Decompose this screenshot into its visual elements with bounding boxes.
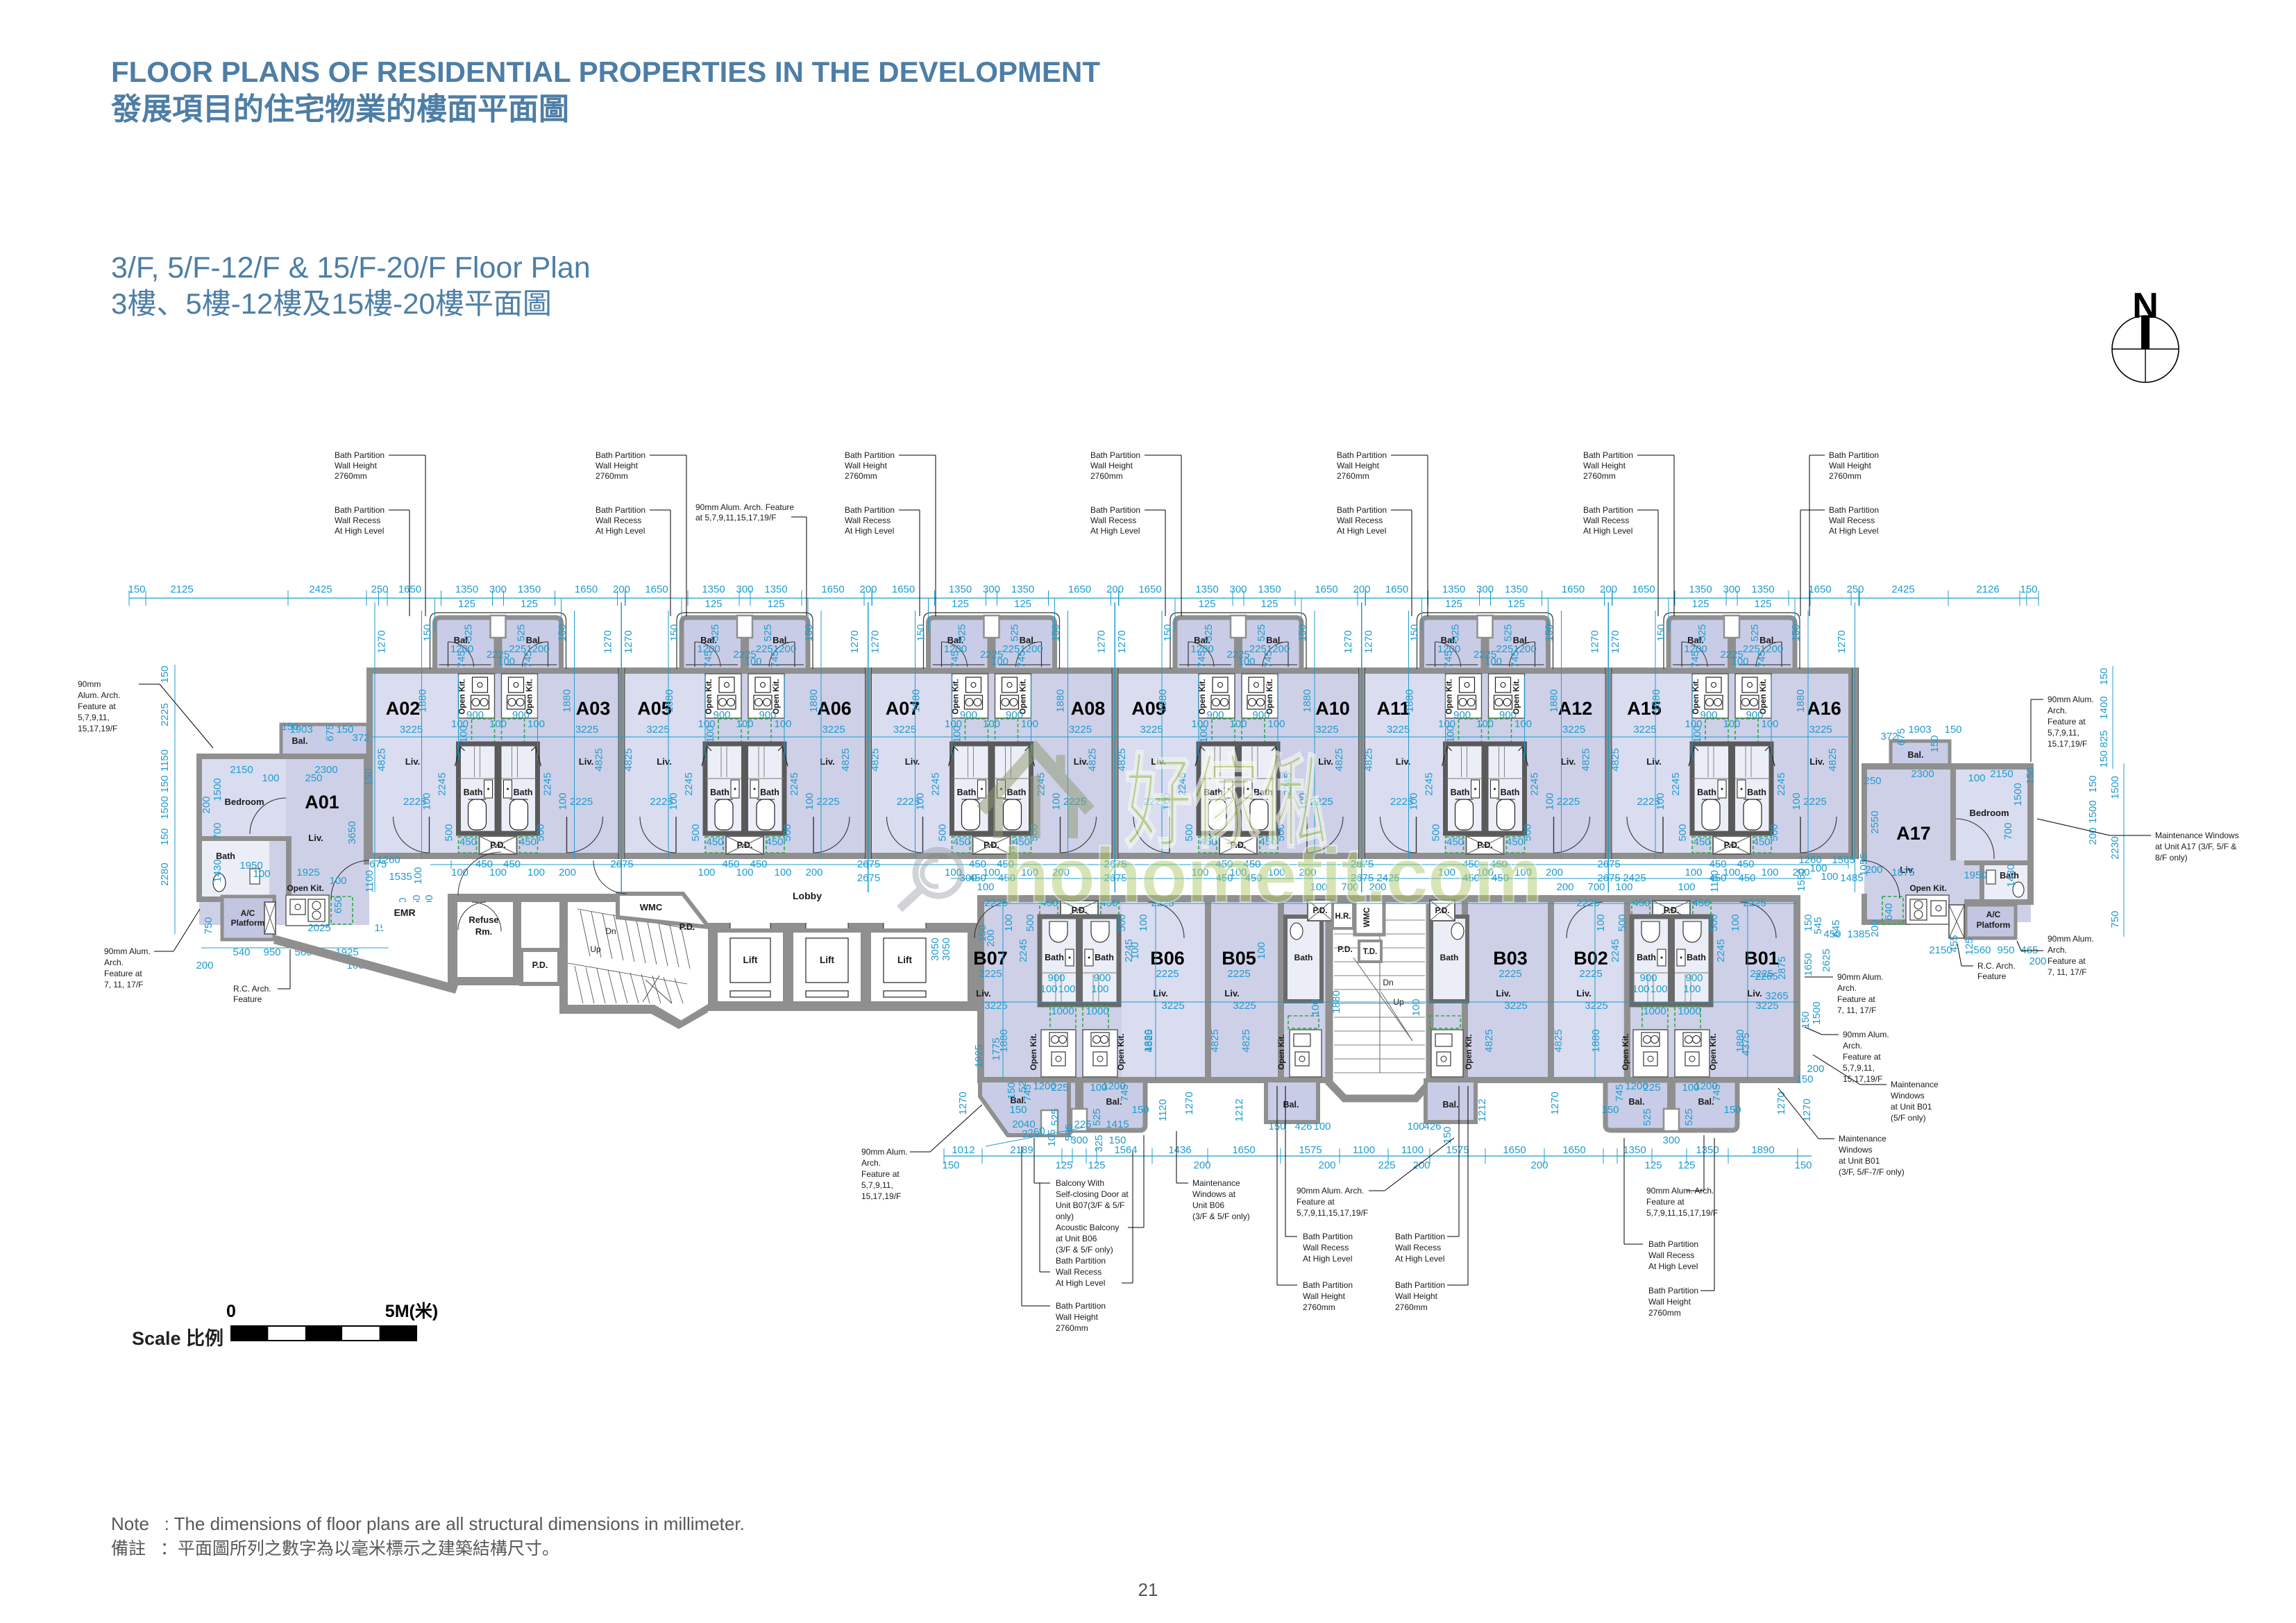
svg-text:15,17,19/F: 15,17,19/F [1843,1074,1882,1084]
svg-text:450: 450 [766,836,783,848]
svg-text:100: 100 [1407,1121,1424,1132]
svg-text:2225: 2225 [979,968,1002,980]
svg-text:Wall Recess: Wall Recess [845,516,890,525]
svg-text:B07: B07 [973,948,1008,969]
svg-text:125: 125 [1260,598,1278,610]
svg-text:Bath: Bath [1637,953,1656,962]
svg-text:525: 525 [956,624,968,641]
svg-text:R.C. Arch.: R.C. Arch. [233,984,271,994]
svg-text:4825: 4825 [1209,1029,1221,1052]
svg-text:2245: 2245 [930,772,942,795]
svg-text:450: 450 [1753,836,1770,848]
svg-text:A16: A16 [1807,698,1841,719]
svg-text:100: 100 [421,792,433,810]
svg-text:1270: 1270 [602,630,614,653]
svg-text:4825: 4825 [1363,748,1375,771]
svg-text:150: 150 [1790,624,1802,641]
svg-text:500: 500 [444,824,455,841]
svg-text:1100: 1100 [1709,870,1721,892]
svg-text:150: 150 [1944,724,1961,736]
svg-text:150: 150 [2098,668,2110,685]
svg-text:8/F only): 8/F only) [2155,853,2188,863]
svg-text:1350: 1350 [455,584,478,595]
svg-text:Wall Recess: Wall Recess [596,516,641,525]
svg-text:Refuse: Refuse [469,915,498,925]
svg-text:Wall Height: Wall Height [1090,461,1133,470]
svg-text:2245: 2245 [1529,772,1541,795]
svg-text:450: 450 [1632,897,1650,909]
svg-text:500: 500 [535,824,547,841]
svg-text:1500: 1500 [2012,783,2024,806]
svg-text:150: 150 [1544,624,1555,641]
svg-text:(3/F, 5/F-7/F only): (3/F, 5/F-7/F only) [1839,1167,1905,1177]
svg-text:Note : The dimensions of flo: Note : The dimensions of floor plans are… [111,1513,745,1534]
svg-text:Wall Recess: Wall Recess [1583,516,1629,525]
svg-text:100: 100 [1595,914,1607,931]
svg-text:500: 500 [1708,914,1720,931]
svg-text:3225: 3225 [575,724,598,736]
svg-text:Arch.: Arch. [1843,1041,1862,1051]
svg-text:2251200: 2251200 [1249,643,1290,655]
svg-text:525: 525 [1450,624,1462,641]
svg-text:1880: 1880 [562,689,573,712]
svg-text:Wall Height: Wall Height [1337,461,1380,470]
svg-text:Windows at: Windows at [1192,1189,1236,1199]
svg-text:100: 100 [489,867,507,878]
svg-text:2760mm: 2760mm [596,471,628,481]
svg-text:2225: 2225 [159,703,171,726]
svg-text:1055: 1055 [1858,853,1870,876]
svg-text:90mm Alum. Arch. Feature: 90mm Alum. Arch. Feature [695,502,794,512]
svg-text:4825: 4825 [1827,748,1839,771]
svg-text:100: 100 [1129,942,1141,959]
svg-text:P.D.: P.D. [1664,906,1680,915]
svg-text:1100: 1100 [1353,1144,1375,1156]
svg-text:1200: 1200 [1190,643,1213,655]
svg-text:Wall Height: Wall Height [335,461,378,470]
svg-text:1650: 1650 [1562,584,1585,595]
svg-text:900: 900 [1639,972,1657,984]
svg-text:Feature at: Feature at [1297,1197,1335,1207]
svg-text:Bath: Bath [1045,953,1064,962]
svg-text:100: 100 [1650,983,1667,995]
svg-text:發展項目的住宅物業的樓面平面圖: 發展項目的住宅物業的樓面平面圖 [110,92,569,126]
svg-text:100: 100 [1445,725,1457,742]
svg-text:100: 100 [1310,999,1322,1016]
svg-text:150: 150 [159,665,171,683]
svg-text:Liv.: Liv. [1576,988,1591,999]
svg-text:200: 200 [1412,1159,1430,1171]
svg-text:1212: 1212 [1233,1098,1245,1121]
svg-text:Bath Partition: Bath Partition [1056,1301,1106,1311]
svg-text:300: 300 [983,584,1000,595]
svg-text:1000: 1000 [1643,1005,1666,1017]
svg-text:2760mm: 2760mm [1303,1302,1335,1312]
svg-text:100: 100 [1410,999,1422,1016]
svg-text:Platform: Platform [231,918,265,928]
svg-text:5M(米): 5M(米) [385,1302,438,1321]
svg-text:Dn: Dn [605,926,616,936]
svg-text:Wall Height: Wall Height [1829,461,1872,470]
svg-text:200: 200 [1556,881,1573,893]
svg-text:Liv.: Liv. [405,756,420,767]
svg-text:Lift: Lift [743,955,758,965]
svg-text:125: 125 [1445,598,1462,610]
svg-text:150: 150 [1009,1104,1027,1116]
svg-text:500: 500 [937,824,949,841]
svg-text:100: 100 [1058,983,1075,995]
svg-text:1200: 1200 [697,643,720,655]
svg-text:1880: 1880 [1795,689,1807,712]
svg-text:P.D.: P.D. [1724,840,1740,850]
svg-text:Lobby: Lobby [793,890,822,901]
svg-text:750: 750 [203,917,214,934]
svg-text:Liv.: Liv. [905,756,920,767]
svg-text:250: 250 [371,584,388,595]
svg-text:1150: 1150 [159,749,171,772]
svg-text:WMC: WMC [640,902,663,912]
svg-text:2760mm: 2760mm [845,471,877,481]
svg-text:300: 300 [1070,1135,1088,1146]
svg-text:4375: 4375 [1740,1033,1752,1055]
svg-text:3225: 3225 [1562,724,1585,736]
svg-text:1650: 1650 [1562,1144,1585,1156]
svg-text:Bath Partition: Bath Partition [335,505,385,515]
svg-text:100: 100 [1090,1082,1107,1094]
svg-text:3225: 3225 [1809,724,1832,736]
svg-text:150: 150 [159,775,171,792]
svg-text:1880: 1880 [1301,689,1313,712]
svg-text:2675: 2675 [1597,858,1620,870]
svg-text:2225: 2225 [1743,897,1766,909]
svg-text:Self-closing Door at: Self-closing Door at [1056,1189,1129,1199]
svg-text:225: 225 [1643,1082,1660,1094]
svg-text:900: 900 [1453,709,1471,721]
svg-text:900: 900 [713,709,730,721]
svg-text:2245: 2245 [1018,939,1029,962]
svg-text:200: 200 [613,584,630,595]
svg-text:2225: 2225 [1156,968,1179,980]
svg-text:1650: 1650 [892,584,915,595]
svg-text:450: 450 [706,836,723,848]
svg-text:1650: 1650 [1315,584,1337,595]
svg-text:2225: 2225 [1557,796,1580,808]
svg-text:325: 325 [1093,1135,1105,1152]
svg-text:hohomefit.com: hohomefit.com [1002,832,1542,919]
svg-text:B02: B02 [1573,948,1608,969]
svg-text:4825: 4825 [1143,1029,1155,1052]
svg-text:100: 100 [1761,867,1778,878]
svg-text:1350: 1350 [1696,1144,1719,1156]
svg-text:150: 150 [668,624,680,641]
svg-text:1650: 1650 [1068,584,1091,595]
svg-text:300: 300 [1662,1135,1680,1146]
svg-text:100: 100 [1267,718,1285,730]
svg-text:4825: 4825 [376,748,388,771]
svg-text:100: 100 [1476,718,1494,730]
svg-text:4825: 4825 [1333,748,1345,771]
svg-text:Wall Height: Wall Height [1648,1297,1691,1307]
svg-text:Acoustic Balcony: Acoustic Balcony [1056,1223,1119,1232]
svg-text:1120: 1120 [1157,1099,1169,1121]
svg-text:1270: 1270 [849,630,861,653]
svg-text:1100: 1100 [364,870,375,892]
svg-text:2245: 2245 [1670,772,1682,795]
svg-text:Lift: Lift [897,955,912,965]
svg-text:1650: 1650 [1503,1144,1526,1156]
svg-text:150: 150 [281,721,298,733]
svg-text:2675: 2675 [857,858,880,870]
svg-text:125: 125 [458,598,475,610]
svg-text:100: 100 [262,772,279,784]
svg-text:Maintenance: Maintenance [1839,1134,1886,1144]
svg-text:640: 640 [1883,903,1895,920]
svg-text:1500: 1500 [159,796,171,819]
svg-text:2225: 2225 [570,796,593,808]
svg-text:1212: 1212 [1476,1098,1488,1121]
svg-text:1575: 1575 [1299,1144,1322,1156]
svg-text:950: 950 [263,946,280,958]
svg-text:P.D.: P.D. [737,840,753,850]
svg-text:1875: 1875 [1891,867,1914,878]
svg-text:1880: 1880 [664,689,675,712]
svg-text:A08: A08 [1071,698,1106,719]
svg-text:525: 525 [1009,624,1021,641]
svg-text:150: 150 [1655,624,1667,641]
svg-text:100: 100 [557,792,569,810]
svg-text:2245: 2245 [1610,939,1621,962]
svg-text:150: 150 [128,584,145,595]
svg-text:1350: 1350 [518,584,541,595]
svg-text:1500: 1500 [2109,776,2121,799]
svg-text:Unit B06: Unit B06 [1192,1200,1224,1210]
svg-text:Arch.: Arch. [104,958,124,967]
svg-text:Bath: Bath [1747,788,1766,797]
svg-text:Arch.: Arch. [861,1158,881,1168]
svg-text:125: 125 [704,598,722,610]
svg-text:P.D.: P.D. [490,840,506,850]
svg-text:at Unit B01: at Unit B01 [1839,1156,1880,1166]
svg-text:150: 150 [2020,584,2037,595]
svg-text:1430: 1430 [2005,864,2017,887]
svg-text:5,7,9,11,: 5,7,9,11, [1843,1063,1875,1073]
svg-text:5,7,9,11,15,17,19/F: 5,7,9,11,15,17,19/F [1297,1208,1368,1218]
svg-text:1270: 1270 [1183,1091,1195,1114]
svg-text:1000: 1000 [1051,1005,1074,1017]
svg-text:100: 100 [1408,792,1420,810]
svg-text:300: 300 [736,584,753,595]
svg-text:1880: 1880 [1651,689,1662,712]
svg-text:1650: 1650 [575,584,598,595]
svg-text:2245: 2245 [437,772,448,795]
svg-text:560: 560 [1973,944,1991,956]
svg-text:Bath Partition: Bath Partition [1583,450,1633,460]
svg-text:P.D.: P.D. [679,922,695,932]
svg-text:Bal.: Bal. [1443,1100,1459,1110]
svg-text:Wall Height: Wall Height [596,461,639,470]
svg-text:2251200: 2251200 [1743,643,1783,655]
svg-text:4825: 4825 [1087,748,1099,771]
svg-text:Wall Height: Wall Height [1056,1312,1099,1322]
svg-text:P.D.: P.D. [532,960,548,970]
svg-text:Dn: Dn [1383,978,1393,987]
svg-text:2225: 2225 [1499,968,1521,980]
svg-text:525: 525 [516,624,527,641]
svg-text:Bath Partition: Bath Partition [1583,505,1633,515]
svg-text:Wall Recess: Wall Recess [1056,1267,1101,1277]
svg-text:2150: 2150 [230,764,253,776]
svg-text:21: 21 [1138,1579,1158,1600]
svg-text:525: 525 [1203,624,1215,641]
svg-text:225: 225 [1051,1082,1068,1094]
svg-text:1350: 1350 [702,584,725,595]
svg-text:Wall Recess: Wall Recess [335,516,380,525]
svg-text:100: 100 [1678,881,1695,893]
svg-text:150: 150 [1131,1104,1149,1116]
svg-text:Open Kit.: Open Kit. [459,679,467,714]
svg-text:Bath Partition: Bath Partition [1303,1232,1353,1241]
svg-text:1650: 1650 [1808,584,1831,595]
svg-text:900: 900 [1047,972,1065,984]
svg-text:150: 150 [2098,750,2110,767]
svg-text:Liv.: Liv. [1224,988,1239,999]
svg-text:EMR: EMR [394,907,415,918]
svg-text:100: 100 [1198,725,1210,742]
svg-text:1350: 1350 [1689,584,1712,595]
svg-text:150: 150 [2025,767,2036,784]
svg-text:1350: 1350 [1258,584,1281,595]
svg-text:100: 100 [983,718,1000,730]
svg-text:Open Kit.: Open Kit. [1446,679,1454,714]
svg-text:100: 100 [329,875,346,887]
svg-text:4825: 4825 [1483,1029,1495,1052]
svg-text:Bath: Bath [464,788,483,797]
svg-text:100: 100 [1615,881,1632,893]
svg-text:Bath: Bath [1697,788,1716,797]
svg-text:100: 100 [736,718,753,730]
svg-text:100: 100 [1040,983,1057,995]
svg-text:Liv.: Liv. [1646,756,1661,767]
svg-text:100: 100 [698,867,715,878]
svg-text:2760mm: 2760mm [1648,1308,1681,1318]
svg-text:125: 125 [1691,598,1709,610]
svg-text:At High Level: At High Level [335,526,384,536]
svg-text:Feature at: Feature at [1843,1052,1881,1062]
svg-text:Arch.: Arch. [2048,945,2067,955]
svg-text:100: 100 [1655,792,1666,810]
svg-text:2225: 2225 [1579,968,1602,980]
svg-text:450: 450 [1692,897,1710,909]
svg-text:Feature at: Feature at [2048,956,2086,966]
svg-text:Feature: Feature [1977,971,2007,981]
svg-text:100: 100 [1682,1082,1699,1094]
svg-text:B05: B05 [1222,948,1256,969]
svg-text:100: 100 [527,718,545,730]
svg-text:Scale 比例: Scale 比例 [132,1328,223,1349]
svg-text:2225: 2225 [1576,897,1599,909]
svg-text:Open Kit.: Open Kit. [1692,679,1700,714]
svg-text:Windows: Windows [1839,1145,1873,1155]
svg-text:2251200: 2251200 [1002,643,1043,655]
svg-text:825: 825 [2098,730,2110,747]
svg-text:1535: 1535 [389,871,412,883]
svg-text:950: 950 [1997,944,2014,956]
svg-text:2760mm: 2760mm [1056,1323,1088,1333]
svg-text:2225: 2225 [816,796,839,808]
svg-text:1350: 1350 [764,584,787,595]
svg-text:2025: 2025 [307,922,330,934]
svg-text:1200: 1200 [1684,643,1707,655]
svg-text:備註 ：平面圖所列之數字為以毫米標示之建築結構尺寸。: 備註 ：平面圖所列之數字為以毫米標示之建築結構尺寸。 [111,1539,559,1558]
svg-text:Wall Recess: Wall Recess [1829,516,1875,525]
svg-text:Bedroom: Bedroom [224,797,264,807]
svg-text:1880: 1880 [1157,689,1169,712]
svg-text:90mm Alum.: 90mm Alum. [861,1147,908,1157]
svg-text:A/C: A/C [241,908,255,918]
svg-text:200: 200 [2029,955,2046,967]
svg-text:2625: 2625 [1821,949,1832,971]
svg-text:Liv.: Liv. [1747,988,1762,999]
svg-text:100: 100 [804,792,816,810]
svg-text:Open Kit.: Open Kit. [705,679,714,714]
svg-text:2550: 2550 [1869,810,1881,833]
svg-text:2675: 2675 [857,872,880,884]
svg-text:Feature at: Feature at [2048,717,2086,726]
svg-text:525: 525 [1641,1108,1653,1125]
svg-text:200: 200 [805,867,822,878]
svg-text:100: 100 [1091,983,1108,995]
svg-text:A03: A03 [576,698,611,719]
svg-text:3225: 3225 [400,724,423,736]
svg-text:150: 150 [159,828,171,845]
svg-text:150: 150 [942,1159,959,1171]
svg-text:745: 745 [1119,1084,1131,1101]
svg-text:525: 525 [762,624,774,641]
svg-text:150: 150 [336,724,353,736]
svg-text:(5/F only): (5/F only) [1891,1113,1926,1123]
svg-text:at Unit B06: at Unit B06 [1056,1234,1097,1243]
svg-text:Open Kit.: Open Kit. [1909,883,1946,893]
svg-text:Bath: Bath [1294,953,1313,962]
svg-text:100: 100 [774,867,791,878]
svg-text:Bath Partition: Bath Partition [1829,450,1879,460]
svg-text:Bath Partition: Bath Partition [845,450,895,460]
svg-text:Bath: Bath [957,788,977,797]
svg-text:Wall Recess: Wall Recess [1337,516,1383,525]
svg-text:Liv.: Liv. [976,988,990,999]
svg-text:Wall Recess: Wall Recess [1395,1243,1441,1252]
svg-text:At High Level: At High Level [1337,526,1386,536]
svg-text:Open Kit.: Open Kit. [1278,1034,1286,1069]
svg-text:B03: B03 [1493,948,1528,969]
svg-text:100: 100 [1683,983,1700,995]
svg-text:Open Kit.: Open Kit. [1465,1034,1474,1069]
svg-text:200: 200 [1807,1063,1824,1075]
svg-text:700: 700 [1587,881,1605,893]
svg-text:525: 525 [709,624,721,641]
svg-text:1270: 1270 [623,630,634,653]
svg-text:only): only) [1056,1212,1074,1221]
svg-text:1650: 1650 [1632,584,1655,595]
svg-text:150: 150 [1006,1082,1018,1099]
svg-text:150: 150 [1800,1011,1812,1028]
svg-text:1270: 1270 [1116,630,1128,653]
svg-text:1270: 1270 [1589,630,1601,653]
svg-text:Bath: Bath [1095,953,1114,962]
svg-text:Bedroom: Bedroom [1969,808,2009,818]
svg-text:200: 200 [1546,867,1563,878]
svg-text:100: 100 [412,867,424,884]
